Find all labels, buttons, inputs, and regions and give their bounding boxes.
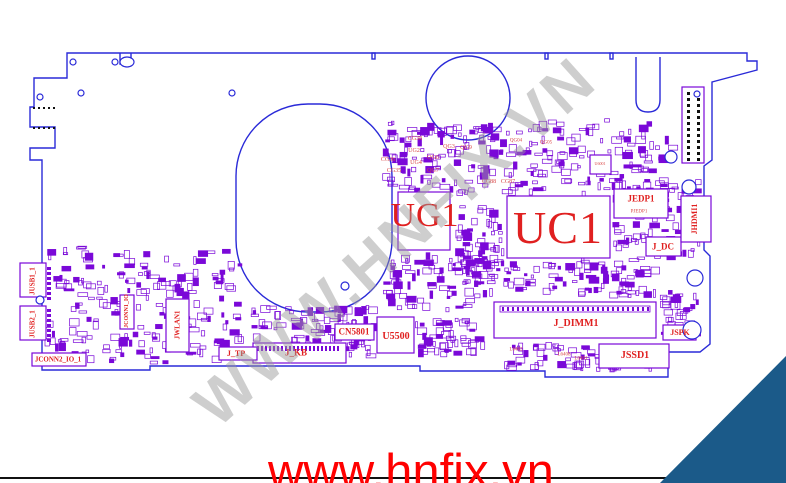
chip-uc1 bbox=[507, 196, 610, 258]
boardview-canvas: WWW.HNFIX.VN UG1UC1J_DIMM1JSSD1U5500CN58… bbox=[0, 0, 786, 483]
conn-jssd1 bbox=[599, 344, 669, 368]
site-url: www.hnfix.vn bbox=[268, 444, 554, 483]
hinge-slot bbox=[636, 57, 660, 112]
conn-jdc bbox=[646, 237, 681, 256]
conn-jedp1 bbox=[614, 189, 668, 218]
conn-jconn1-io bbox=[120, 295, 134, 329]
conn-dock-block bbox=[682, 87, 704, 163]
conn-jhdmi1 bbox=[681, 196, 711, 242]
conn-jconn2-io-1 bbox=[32, 353, 86, 366]
chip-u5500 bbox=[377, 317, 414, 353]
edge-notch bbox=[372, 53, 375, 59]
edge-notch bbox=[610, 53, 613, 59]
conn-jusb2-1 bbox=[20, 306, 46, 340]
conn-jusb1-1 bbox=[20, 263, 46, 297]
chip-u6001 bbox=[590, 155, 611, 174]
conn-jwlan1 bbox=[166, 299, 189, 352]
